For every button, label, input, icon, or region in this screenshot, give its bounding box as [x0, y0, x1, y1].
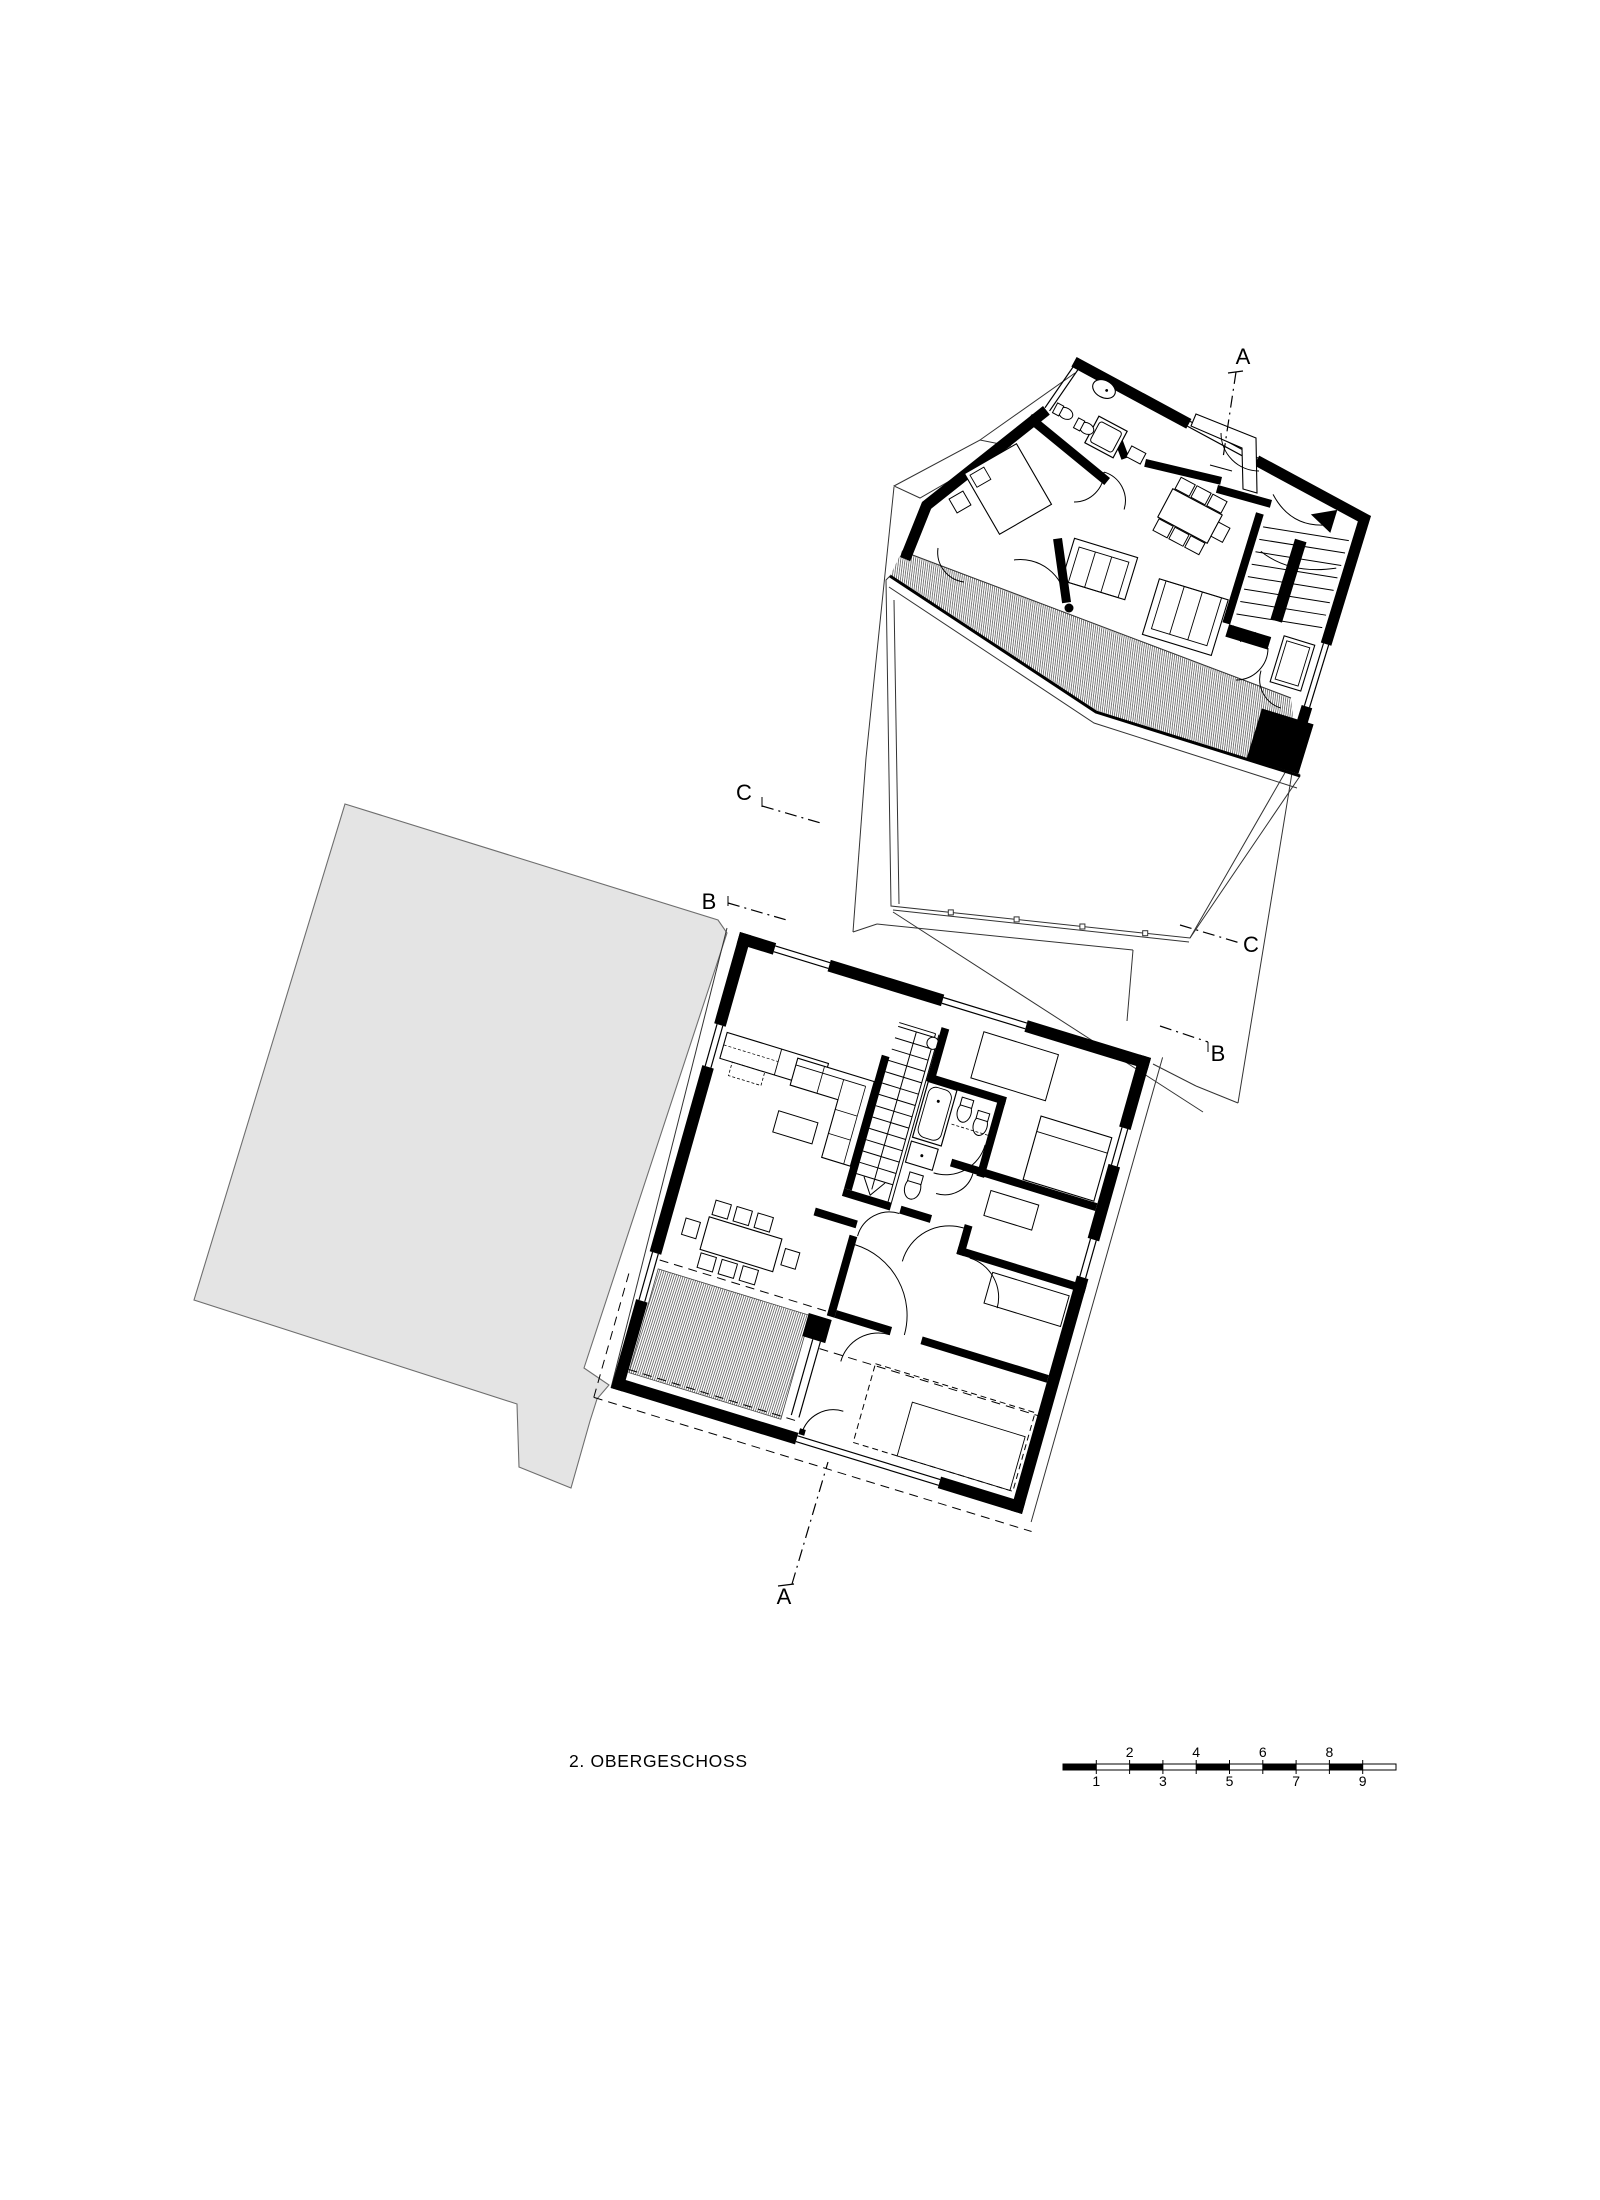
svg-text:C: C — [736, 780, 752, 805]
svg-text:C: C — [1243, 932, 1259, 957]
svg-text:6: 6 — [1259, 1744, 1267, 1760]
svg-text:A: A — [777, 1584, 792, 1609]
svg-text:4: 4 — [1192, 1744, 1200, 1760]
svg-text:B: B — [1211, 1041, 1226, 1066]
svg-text:5: 5 — [1226, 1773, 1234, 1789]
svg-text:A: A — [1236, 344, 1251, 369]
svg-text:9: 9 — [1359, 1773, 1367, 1789]
svg-text:B: B — [702, 889, 717, 914]
svg-text:3: 3 — [1159, 1773, 1167, 1789]
svg-text:2: 2 — [1126, 1744, 1134, 1760]
svg-text:1: 1 — [1092, 1773, 1100, 1789]
svg-text:2. OBERGESCHOSS: 2. OBERGESCHOSS — [569, 1751, 748, 1771]
svg-text:7: 7 — [1292, 1773, 1300, 1789]
svg-text:8: 8 — [1326, 1744, 1334, 1760]
